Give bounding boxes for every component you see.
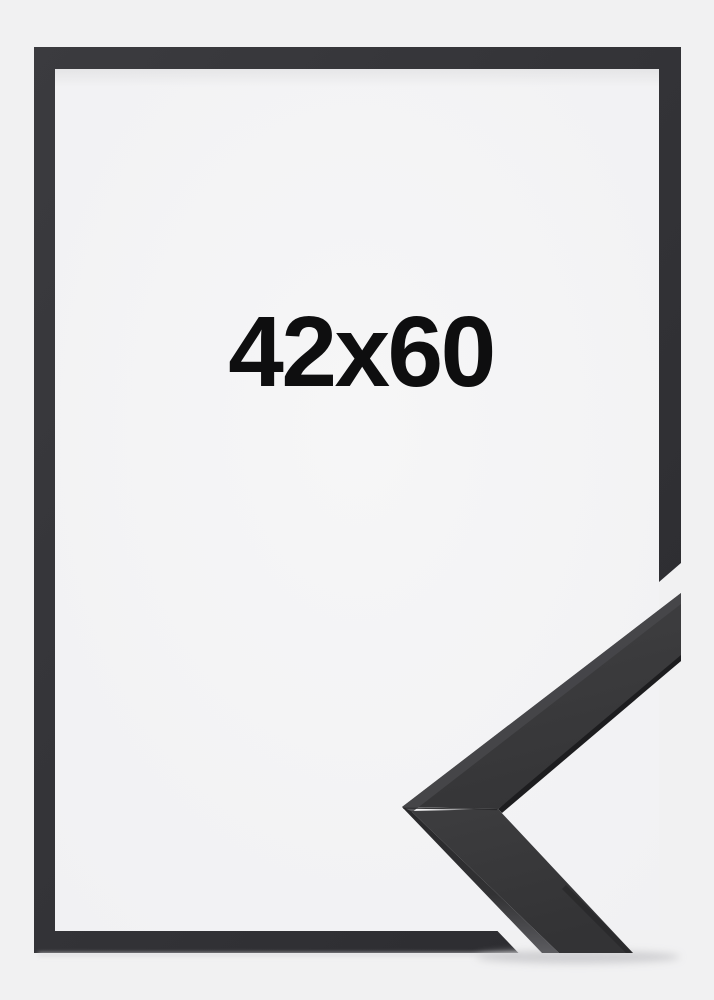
size-label: 42x60 — [228, 302, 494, 402]
frame-bottom-shadow — [38, 953, 520, 957]
frame-photo-graphic — [0, 0, 714, 1000]
frame-opening-inner-shadow — [55, 69, 659, 87]
frame-opening — [55, 69, 659, 931]
product-photo-frame: 42x60 — [0, 0, 714, 1000]
